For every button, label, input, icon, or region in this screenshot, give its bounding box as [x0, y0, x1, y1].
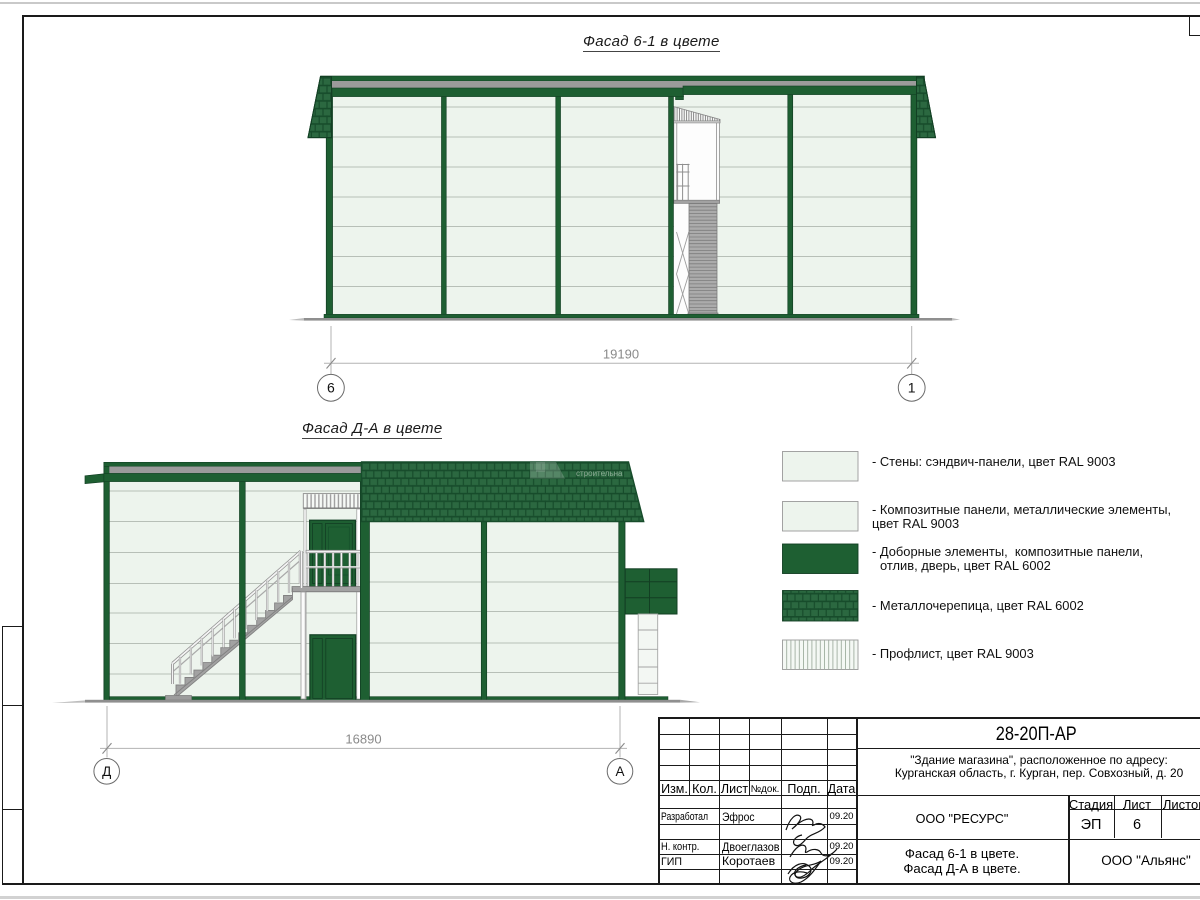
svg-text:Д: Д — [102, 764, 111, 779]
svg-text:А: А — [615, 764, 624, 779]
svg-text:19190: 19190 — [603, 347, 639, 362]
svg-text:6: 6 — [327, 380, 335, 396]
svg-text:16890: 16890 — [345, 732, 381, 747]
svg-text:1: 1 — [908, 380, 916, 396]
svg-text:строительна: строительна — [576, 469, 623, 478]
